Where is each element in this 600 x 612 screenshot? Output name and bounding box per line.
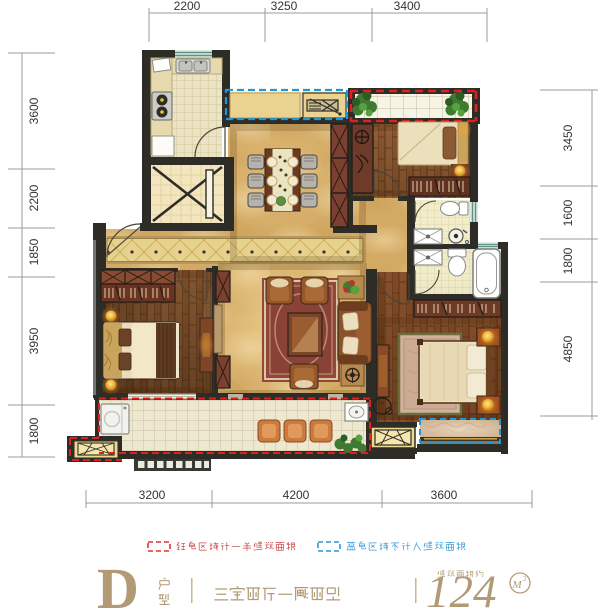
svg-text:4850: 4850 <box>561 335 575 362</box>
svg-text:1800: 1800 <box>27 417 41 444</box>
svg-text:1850: 1850 <box>27 238 41 265</box>
svg-text:1600: 1600 <box>561 199 575 226</box>
svg-text:1800: 1800 <box>561 247 575 274</box>
svg-text:M: M <box>512 579 523 591</box>
svg-text:3950: 3950 <box>27 327 41 354</box>
svg-text:3600: 3600 <box>431 488 458 502</box>
svg-text:3450: 3450 <box>561 124 575 151</box>
svg-text:3250: 3250 <box>271 0 298 13</box>
svg-text:4200: 4200 <box>283 488 310 502</box>
svg-text:2: 2 <box>523 575 527 583</box>
svg-text:2200: 2200 <box>174 0 201 13</box>
svg-text:D: D <box>97 556 139 612</box>
svg-text:124: 124 <box>426 566 497 612</box>
svg-text:3200: 3200 <box>139 488 166 502</box>
svg-text:2200: 2200 <box>27 184 41 211</box>
svg-text:3600: 3600 <box>27 97 41 124</box>
svg-text:3400: 3400 <box>394 0 421 13</box>
